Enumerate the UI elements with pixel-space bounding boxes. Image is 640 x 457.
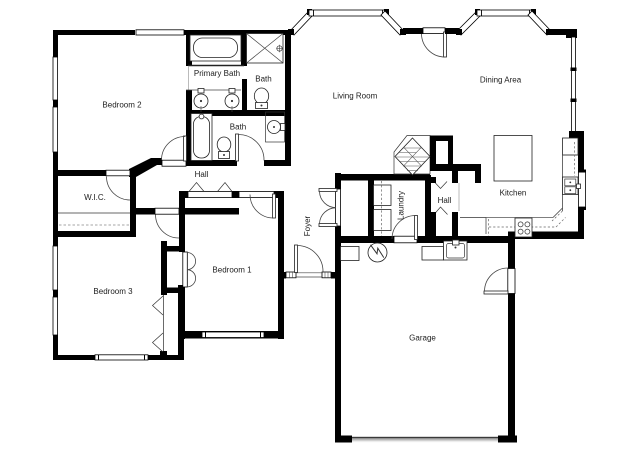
svg-text:Living Room: Living Room bbox=[333, 92, 378, 101]
svg-text:Hall: Hall bbox=[438, 196, 452, 205]
svg-text:Kitchen: Kitchen bbox=[500, 189, 527, 198]
svg-text:Bedroom 3: Bedroom 3 bbox=[93, 287, 133, 296]
svg-text:Primary Bath: Primary Bath bbox=[194, 69, 240, 78]
svg-text:Bedroom 2: Bedroom 2 bbox=[102, 101, 142, 110]
svg-text:Dining Area: Dining Area bbox=[480, 76, 522, 85]
svg-text:Bath: Bath bbox=[230, 123, 246, 132]
svg-text:Bath: Bath bbox=[255, 75, 271, 84]
svg-text:Bedroom 1: Bedroom 1 bbox=[212, 266, 252, 275]
svg-text:Foyer: Foyer bbox=[303, 215, 312, 236]
svg-text:Garage: Garage bbox=[409, 334, 436, 343]
svg-text:W.I.C.: W.I.C. bbox=[84, 193, 106, 202]
svg-text:Hall: Hall bbox=[195, 170, 209, 179]
svg-text:Laundry: Laundry bbox=[397, 191, 406, 220]
